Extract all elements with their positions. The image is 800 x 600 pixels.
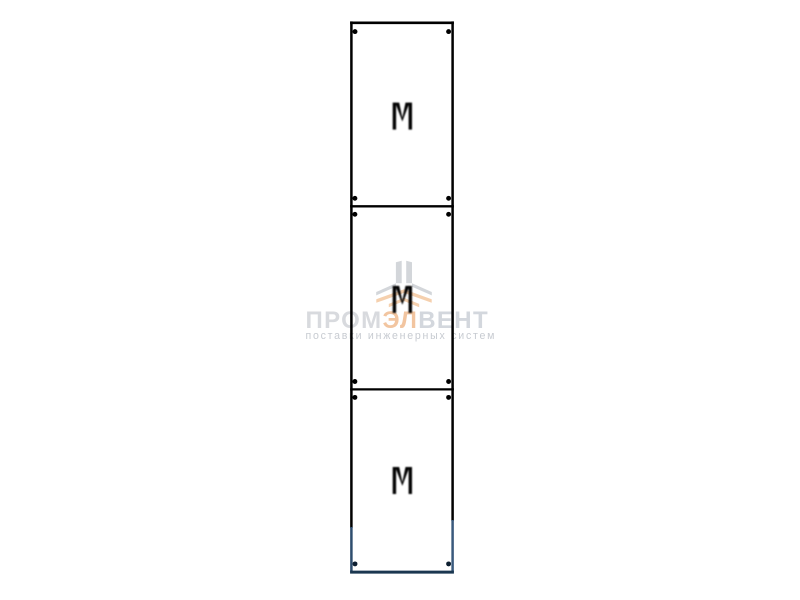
svg-text:поставки инженерных систем: поставки инженерных систем [306, 330, 497, 342]
